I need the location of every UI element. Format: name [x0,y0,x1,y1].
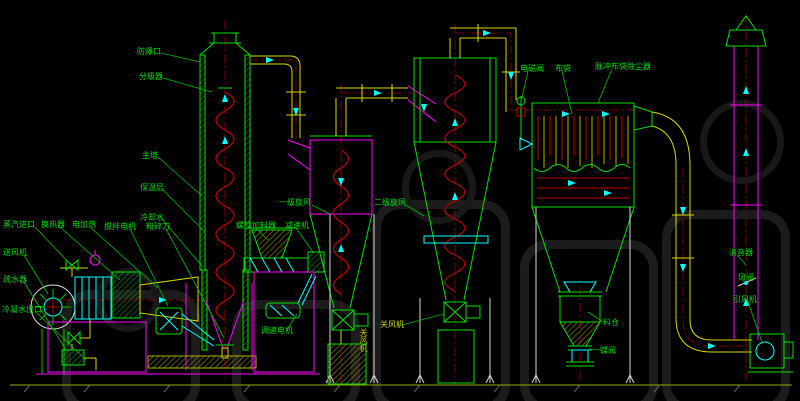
label-condensate-outlet: 冷凝水出口 [2,305,42,314]
duct-cyclone1-to-cyclone2 [336,84,436,136]
label-screw-feeder: 螺旋加料器 [236,221,276,230]
label-rotary-valve-1: 关风机 [359,328,368,352]
label-gear-reducer: 减速机 [285,221,309,230]
label-agitator-motor: 搅拌电机 [104,222,136,231]
label-solenoid-valve: 电磁阀 [520,64,544,73]
label-steam-trap: 疏水器 [3,275,27,284]
duct-baghouse-to-fan [652,112,752,352]
label-muffler: 消音器 [729,248,753,257]
label-pulse-bag-dust-collector: 脉冲布袋除尘器 [595,62,651,71]
label-butterfly-valve: 蝶阀 [600,346,616,355]
label-cyclone-2: 二级旋风 [374,198,406,207]
label-speed-motor: 调速电机 [261,326,293,335]
screw-feeder-assembly [244,228,324,372]
label-supply-fan: 送风机 [3,248,27,257]
label-insulation-layer: 保温层 [140,183,164,192]
label-explosion-vent: 防爆口 [137,47,161,56]
label-crushing-knife: 粉碎刀 [146,222,170,231]
cad-canvas: 防爆口 分级器 主塔 保温层 冷却水 蒸汽进口 换热器 电加热 搅拌电机 粉碎刀… [0,0,800,401]
label-classifier: 分级器 [139,72,163,81]
heat-exchanger [60,250,198,321]
label-electric-heater: 电加热 [72,220,96,229]
label-cloth-bag: 布袋 [555,64,571,73]
tower-bottom-agitator [148,270,256,370]
label-heat-exchanger: 换热器 [41,220,65,229]
label-cooling-water: 冷却水 [140,213,164,222]
duct-tower-to-cyclone1 [250,56,310,170]
duct-cyclone2-to-baghouse [450,24,520,112]
ground-line [10,374,792,392]
label-induced-draft-fan: 引风机 [733,295,757,304]
label-main-tower: 主塔 [142,151,158,160]
label-steam-inlet: 蒸汽进口 [3,220,35,229]
label-air-valve: 风阀 [738,273,754,282]
label-cyclone-1: 一级旋风 [279,198,311,207]
label-hopper: 料仓 [603,318,619,327]
stack-and-id-fan [726,16,793,372]
label-rotary-valve-2: 关风机 [380,320,404,329]
